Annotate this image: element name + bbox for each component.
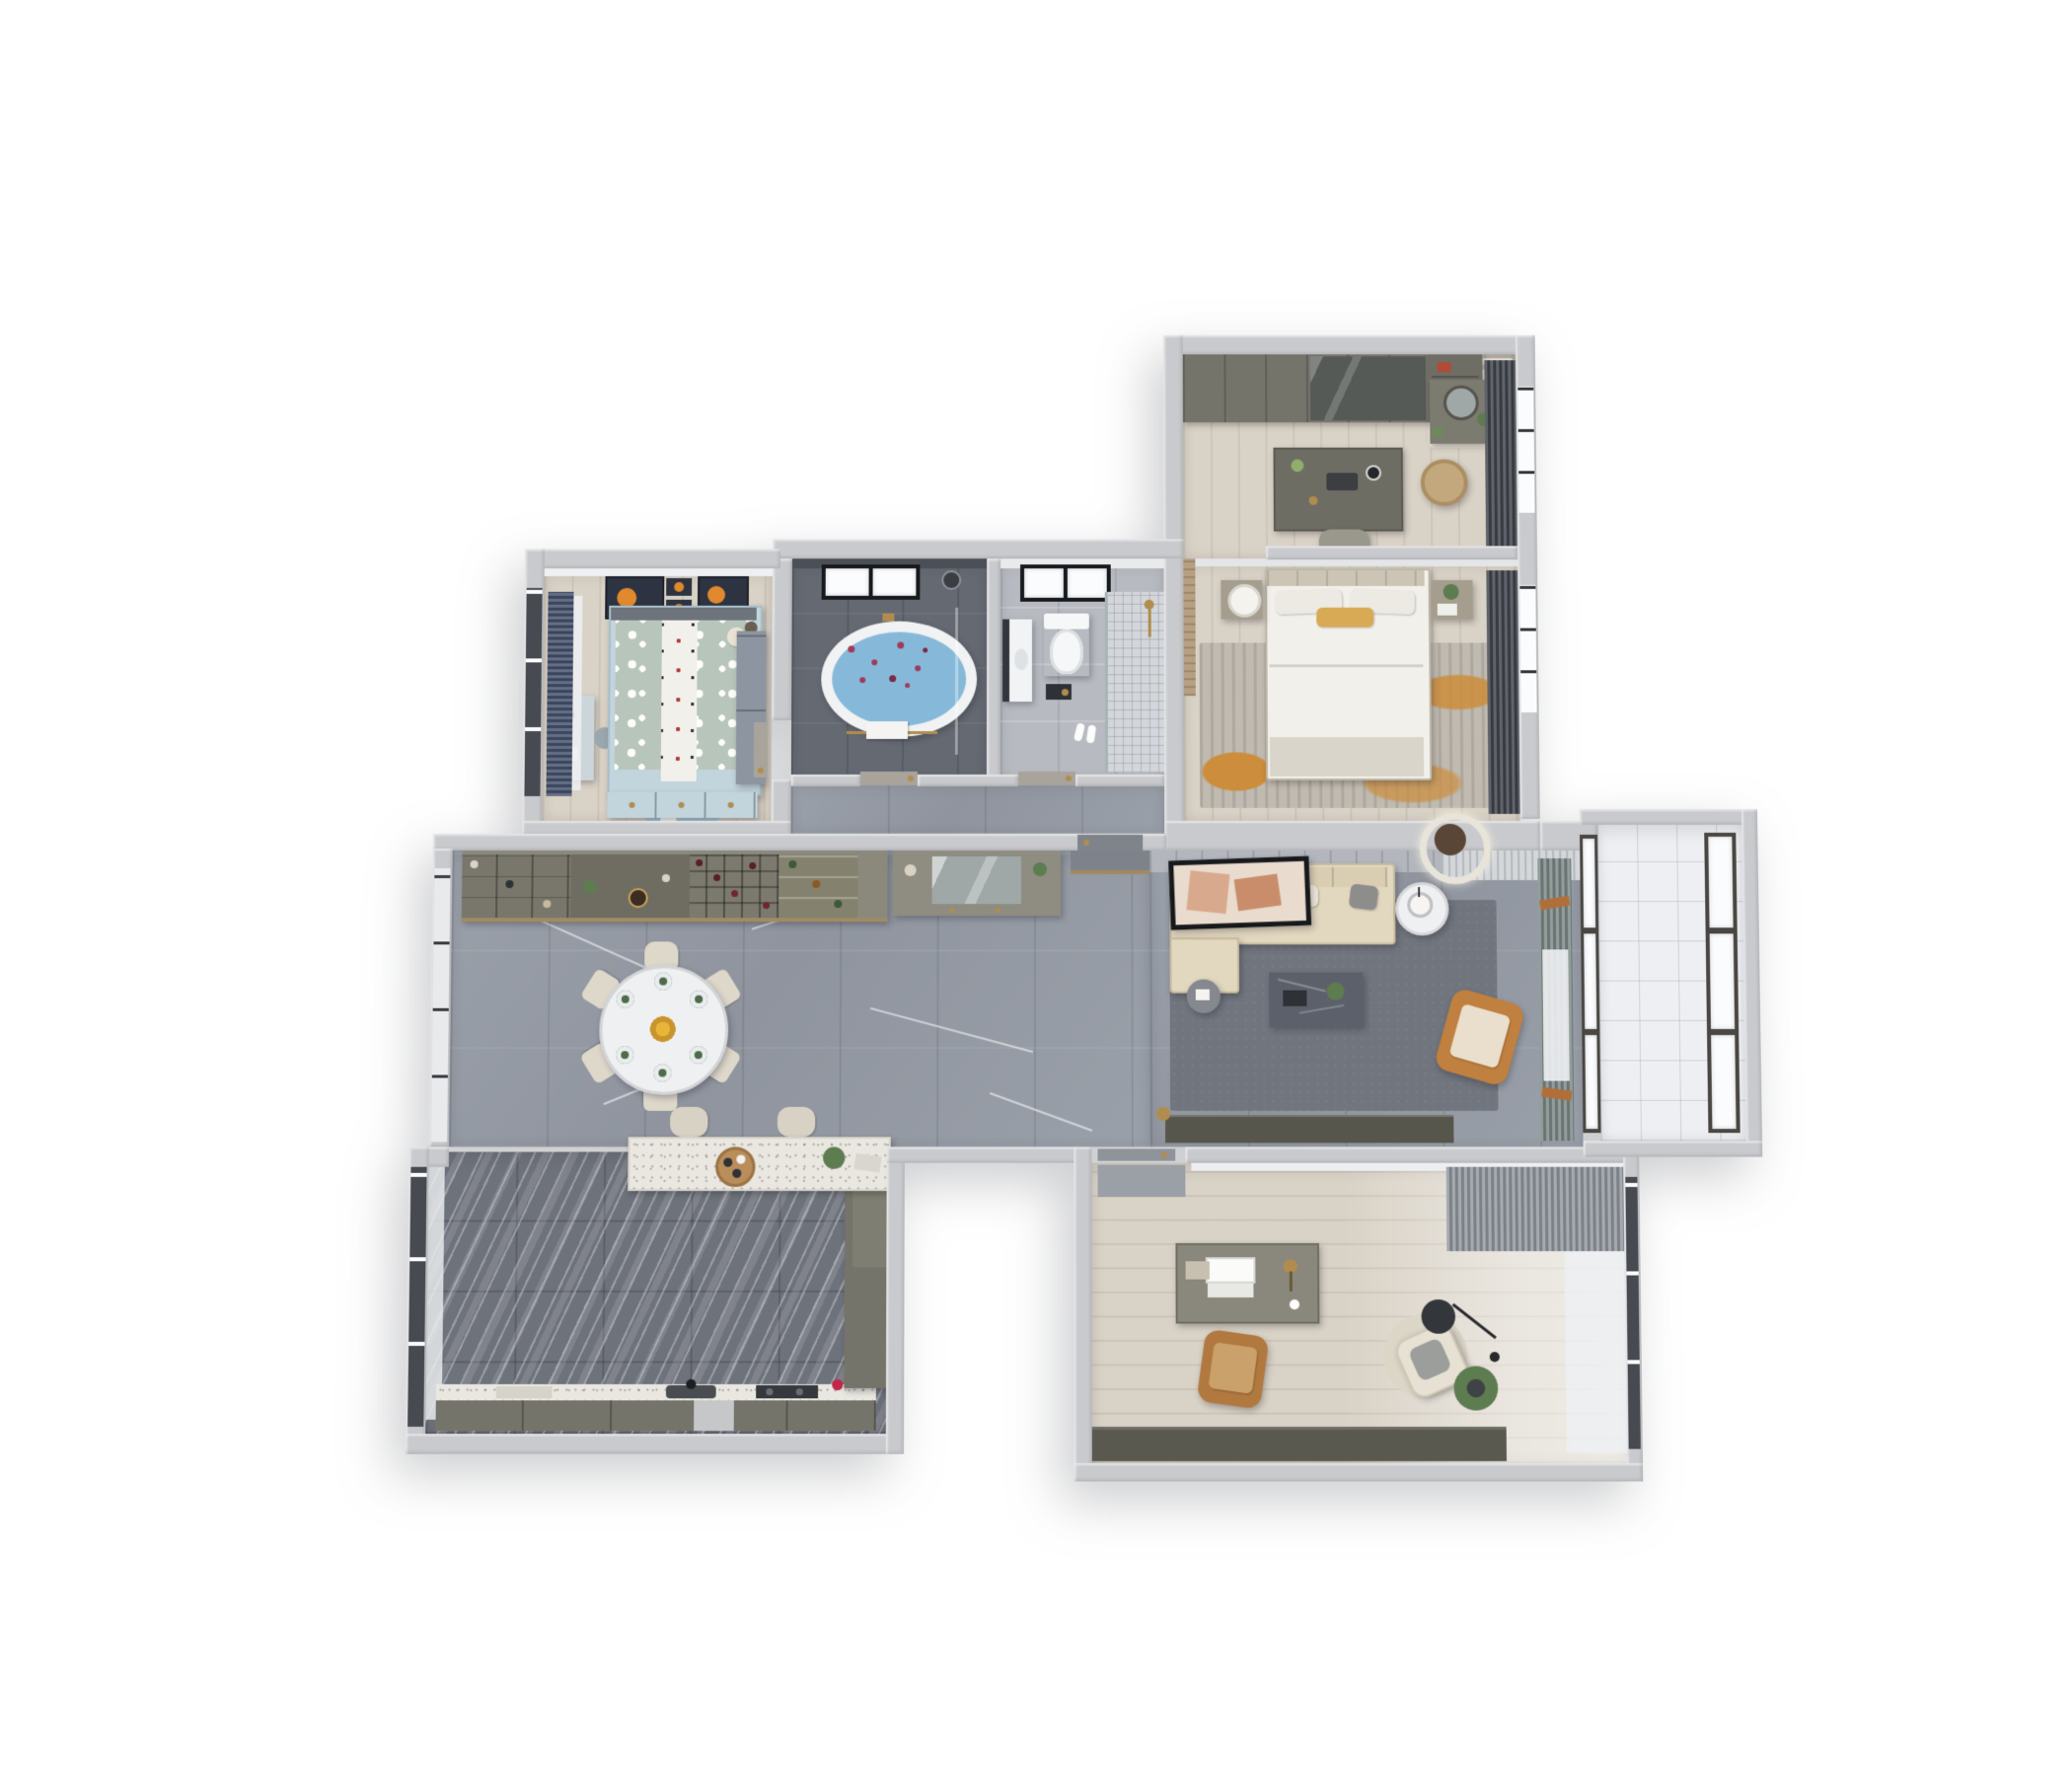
study-grey-drape [1446, 1167, 1625, 1251]
basin [1014, 648, 1028, 670]
console-vase [905, 864, 917, 876]
space-art-frame [666, 578, 692, 596]
nightstand-book [1438, 604, 1457, 616]
wall [1584, 1141, 1763, 1156]
place-setting [654, 973, 672, 991]
room-study [1091, 1163, 1626, 1463]
duvet-fold [1270, 664, 1424, 667]
laptop-screen [1208, 1259, 1254, 1281]
black-faucet [686, 1379, 696, 1389]
wall [1163, 335, 1535, 355]
terracotta-trim [1539, 896, 1570, 911]
kettle [629, 888, 648, 908]
living-curtains [1537, 858, 1574, 1141]
cooktop [756, 1385, 818, 1398]
gold-cup [1309, 496, 1318, 505]
room-dressing [1183, 354, 1517, 558]
dining-french-window [431, 868, 451, 1142]
bar-plant [823, 1147, 845, 1168]
console-mirror [932, 856, 1021, 904]
accent-pillow [1316, 608, 1373, 628]
open-counter [570, 854, 690, 918]
breakfast-bar [628, 1137, 891, 1191]
room-guest-bathroom [1000, 558, 1164, 779]
sprig [1418, 887, 1420, 897]
headboard [1267, 570, 1425, 586]
wall [406, 1434, 904, 1454]
bedroom-east-drapes [1486, 570, 1519, 814]
towel [866, 721, 908, 739]
bathroom-door [1018, 772, 1075, 785]
master-bed [1265, 568, 1432, 780]
headboard-wall-face [1183, 558, 1517, 566]
white-side-table [1395, 882, 1449, 935]
room-master-bathroom [791, 558, 987, 779]
wall [1074, 1463, 1644, 1482]
wall [1185, 1147, 1639, 1162]
rattan-basket [1421, 459, 1468, 505]
white-runner [661, 621, 698, 781]
headboard [611, 608, 757, 621]
corridor-bedroom-hall [791, 779, 1165, 834]
door-mat [1098, 1165, 1186, 1198]
glass-screen [955, 608, 958, 755]
bar-stool [670, 1107, 708, 1137]
bathroom-door [860, 772, 918, 785]
place-setting [653, 1064, 671, 1081]
bag [1438, 362, 1451, 372]
wall-face [545, 568, 773, 576]
dark-side-table [1187, 980, 1221, 1013]
laptop-base [1208, 1284, 1254, 1297]
bath-window [1020, 564, 1111, 602]
study-door [1098, 1148, 1176, 1160]
fire-extinguisher [832, 1379, 843, 1390]
plant-pot [583, 880, 597, 894]
vanity-mirror [1002, 620, 1009, 702]
living-balcony-window [1580, 835, 1601, 1133]
master-bay-window [1519, 585, 1536, 712]
dining-table [599, 965, 729, 1094]
place-setting [690, 991, 707, 1008]
room-dining-hall [449, 851, 1150, 1147]
wall-dressing-master-divider [1266, 546, 1517, 559]
room-kitchen [425, 1151, 886, 1434]
wood-slat-accent [1183, 558, 1195, 696]
kids-curtains [546, 592, 573, 796]
vanity-plant [1432, 426, 1443, 438]
sheer-panel [1542, 949, 1570, 1080]
floorplan-render [0, 0, 2072, 1776]
tray [1283, 991, 1306, 1006]
desk-books [1186, 1261, 1210, 1279]
kids-room-door [754, 722, 768, 777]
console-bonsai [1033, 862, 1047, 876]
bowl [1050, 629, 1083, 675]
credenza-bookcase [1092, 1427, 1507, 1461]
wall [791, 775, 860, 786]
wall [886, 1147, 905, 1453]
study-sheer [1565, 1251, 1627, 1453]
tissue-niche [1046, 684, 1072, 700]
shower-head [941, 570, 961, 590]
room-kids-bedroom [542, 568, 773, 821]
dressing-east-window [1517, 387, 1534, 513]
cistern [1044, 614, 1089, 629]
balcony-window-wall [1704, 833, 1739, 1133]
table-lamp [1227, 584, 1261, 618]
arc-lamp-base [1490, 1352, 1500, 1362]
buffet-cabinet-wall [462, 851, 888, 922]
bar-stool [777, 1107, 815, 1137]
brass-riser [1148, 608, 1151, 637]
planter-lamp [1410, 895, 1430, 915]
flower-centerpiece [650, 1016, 676, 1042]
kids-west-window [524, 588, 542, 796]
shower-glass [1105, 592, 1108, 773]
wall [1075, 775, 1164, 786]
glass-wardrobe [1310, 356, 1427, 420]
coffee-table [1269, 973, 1364, 1027]
underbed-drawers [607, 792, 757, 818]
tray [1326, 473, 1358, 490]
camel-desk-chair [1196, 1329, 1269, 1410]
kitchen-west-window [407, 1167, 427, 1427]
kitchen-sheer [425, 1166, 444, 1420]
base-cabinets [435, 1400, 875, 1431]
pantry-column [844, 1187, 886, 1388]
wall [433, 834, 1167, 851]
wall [1163, 335, 1184, 834]
clock [1366, 465, 1381, 481]
entry-door [1077, 835, 1143, 851]
wall [1580, 809, 1757, 825]
place-setting [617, 991, 634, 1008]
arc-lamp-disc [1421, 1299, 1455, 1334]
apartment-scene [0, 13, 2072, 1776]
vanity-mirror [1443, 386, 1479, 420]
nightstand-plant [1443, 584, 1459, 600]
place-setting [616, 1046, 633, 1064]
wall [772, 558, 792, 720]
entry-threshold [1071, 851, 1149, 874]
bath-window [822, 564, 921, 600]
wall [887, 1147, 1092, 1162]
wall [773, 539, 1183, 558]
kids-sheer [572, 596, 583, 790]
study-desk [1175, 1243, 1319, 1324]
vanity [1002, 620, 1032, 702]
wall [918, 775, 1018, 786]
island-dressing-table [1273, 448, 1403, 532]
wall [525, 549, 780, 568]
dressing-east-drapes [1484, 360, 1517, 555]
shower-zone [1105, 592, 1164, 773]
serving-board [853, 1153, 881, 1173]
media-console [1165, 1115, 1453, 1143]
terracotta-trim [1541, 1087, 1572, 1101]
coffee-cup [1290, 1299, 1299, 1309]
glass-display [778, 854, 858, 918]
slipper [1073, 722, 1085, 741]
tub-faucet [882, 614, 894, 622]
wall [1073, 1147, 1092, 1479]
toilet [1044, 614, 1089, 677]
ring-ceiling-light [1420, 813, 1492, 884]
table-plant [1326, 983, 1344, 1000]
wooden-tray [715, 1147, 756, 1187]
entry-console [892, 851, 1061, 916]
wall-bath-divider [987, 558, 1000, 779]
flower-vase [1291, 459, 1303, 472]
blanket [1270, 737, 1424, 777]
dining-set [574, 941, 746, 1113]
brass-floor-lamp [1156, 1107, 1170, 1121]
room-living [1149, 851, 1583, 1147]
bathtub [821, 622, 977, 737]
shoe-shelves [462, 854, 571, 918]
cutting-board [496, 1386, 553, 1398]
sofa-pillow-grey [1349, 883, 1379, 910]
room-master-bedroom [1183, 558, 1519, 821]
dishwasher [694, 1400, 734, 1431]
room-balcony [1597, 825, 1746, 1141]
wine-rack [690, 854, 779, 918]
place-setting [690, 1046, 707, 1064]
book [1196, 990, 1210, 1000]
throw-blanket [1408, 1337, 1453, 1382]
slipper [1086, 725, 1096, 744]
potted-palm [1453, 1367, 1498, 1411]
abstract-art [1168, 856, 1311, 930]
